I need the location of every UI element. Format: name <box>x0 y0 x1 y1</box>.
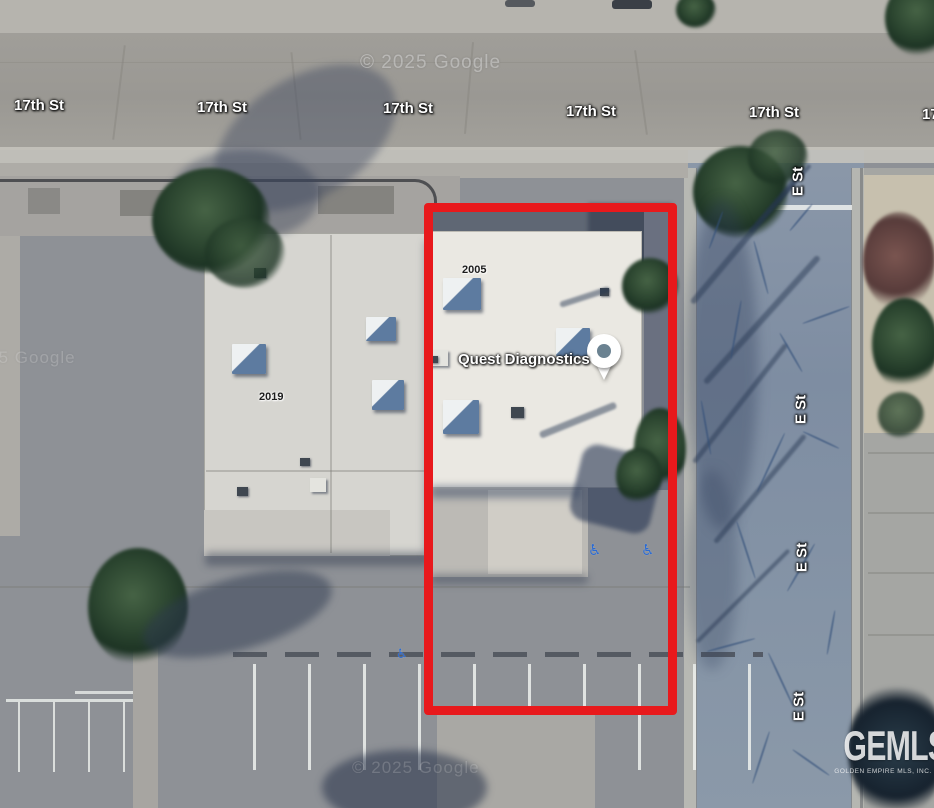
place-pin-icon[interactable] <box>586 334 622 388</box>
curb-line <box>851 168 852 808</box>
west-walkway <box>0 236 20 536</box>
parked-car <box>505 0 535 7</box>
roof-equipment <box>310 478 326 492</box>
street-label-e-st: E St <box>794 528 811 588</box>
parking-stall-lines-left <box>18 702 135 772</box>
parking-line <box>75 691 133 694</box>
building-2019-lower-roof <box>204 510 390 556</box>
building-shadow <box>205 552 430 566</box>
street-label-e-st: E St <box>793 380 810 440</box>
parcel-number-2005: 2005 <box>462 264 486 276</box>
street-label-17th-st: 17th St <box>197 99 247 116</box>
gemls-logo-title: GEMLS <box>843 722 922 770</box>
pin-dot <box>597 344 611 358</box>
street-label-e-st: E St <box>791 677 808 737</box>
street-label-17th-st: 17th St <box>383 100 433 117</box>
parcel-outline <box>424 203 677 715</box>
sidewalk-seam <box>868 634 934 636</box>
parcel-number-2019: 2019 <box>259 391 283 403</box>
street-label-17th-st: 17th St <box>922 106 934 123</box>
accessible-parking-icon: ♿ <box>396 646 408 662</box>
place-label-quest-diagnostics[interactable]: Quest Diagnostics <box>458 351 590 368</box>
roof-vent <box>300 458 310 466</box>
satellite-map[interactable]: ♿ ♿ ♿ © 2025 Google © 2025 Google © 2025 <box>0 0 934 808</box>
street-label-17th-st: 17th St <box>14 97 64 114</box>
rooftop-hvac-unit <box>372 380 404 410</box>
street-label-17th-st: 17th St <box>749 104 799 121</box>
tree-shadow <box>686 470 738 670</box>
north-sidewalk <box>0 0 934 33</box>
parking-line <box>6 699 134 702</box>
google-copyright-watermark: © 2025 Google <box>0 348 76 368</box>
street-label-17th-st: 17th St <box>566 103 616 120</box>
street-label-e-st: E St <box>790 152 807 212</box>
sidewalk-seam <box>868 572 934 574</box>
roof-seam <box>330 235 332 553</box>
roof-vent <box>237 487 248 496</box>
gemls-logo-subtitle: GOLDEN EMPIRE MLS, INC. <box>828 768 934 775</box>
tree <box>205 218 285 288</box>
tree-autumn <box>863 212 934 310</box>
rooftop-hvac-unit <box>232 344 266 374</box>
gemls-logo: GEMLS GOLDEN EMPIRE MLS, INC. <box>828 728 934 790</box>
rooftop-hvac-unit <box>366 317 396 341</box>
google-copyright-watermark: © 2025 Google <box>352 758 480 778</box>
parked-car <box>612 0 652 9</box>
shrub <box>872 298 934 390</box>
roof-seam <box>206 470 430 472</box>
shrub <box>878 392 924 438</box>
google-copyright-watermark: © 2025 Google <box>360 52 501 74</box>
sidewalk-seam <box>868 512 934 514</box>
sidewalk-seam <box>868 452 934 454</box>
